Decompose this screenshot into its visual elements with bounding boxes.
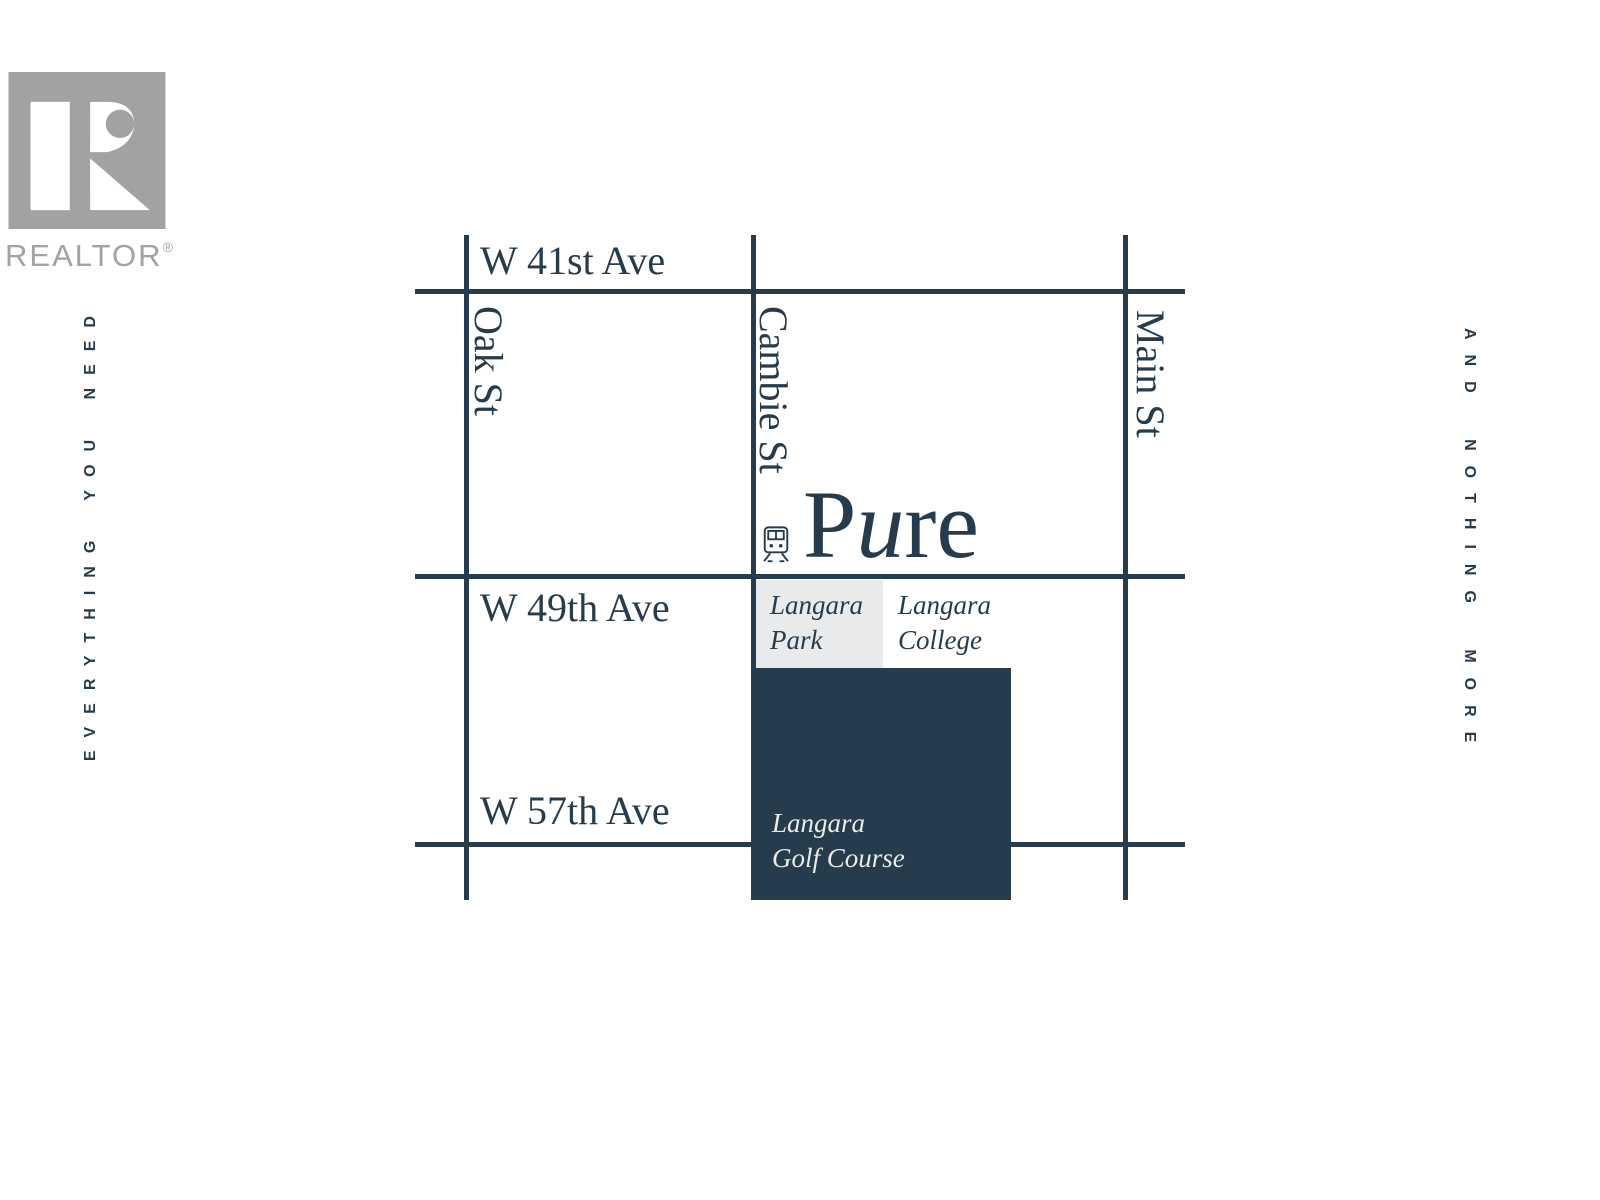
realtor-block-r-icon	[8, 216, 166, 233]
langara-park-label: Langara Park	[770, 588, 863, 658]
langara-college-label: Langara College	[898, 588, 991, 658]
street-line-w-49th-ave	[415, 574, 1185, 579]
realtor-logo	[8, 72, 166, 229]
flyer-map-page: REALTOR® EVERYTHING YOU NEED AND NOTHING…	[0, 0, 1600, 1200]
pure-wordmark-u: u	[856, 471, 904, 578]
langara-college-label-line1: Langara	[898, 588, 991, 623]
registered-trademark-symbol: ®	[163, 239, 175, 255]
langara-golf-course-label-line2: Golf Course	[772, 841, 905, 876]
langara-park-label-line2: Park	[770, 623, 863, 658]
street-label-w-41st-ave: W 41st Ave	[480, 241, 665, 281]
street-label-oak-st: Oak St	[466, 306, 510, 416]
langara-college-label-line2: College	[898, 623, 991, 658]
pure-wordmark: Pure	[803, 477, 979, 573]
langara-park-label-line1: Langara	[770, 588, 863, 623]
realtor-wordmark: REALTOR®	[5, 238, 175, 274]
street-label-main-st: Main St	[1128, 310, 1172, 438]
langara-golf-course-label: Langara Golf Course	[772, 806, 905, 876]
street-label-cambie-st: Cambie St	[751, 306, 795, 474]
pure-wordmark-p: P	[803, 471, 856, 578]
tagline-everything-you-need: EVERYTHING YOU NEED	[82, 303, 100, 761]
street-label-w-49th-ave: W 49th Ave	[480, 588, 670, 628]
street-line-w-41st-ave	[415, 289, 1185, 294]
pure-wordmark-re: re	[904, 471, 979, 578]
tagline-and-nothing-more: AND NOTHING MORE	[1460, 328, 1478, 757]
realtor-wordmark-text: REALTOR	[5, 238, 163, 273]
langara-golf-course-label-line1: Langara	[772, 806, 905, 841]
train-station-icon	[759, 525, 793, 563]
street-label-w-57th-ave: W 57th Ave	[480, 791, 670, 831]
